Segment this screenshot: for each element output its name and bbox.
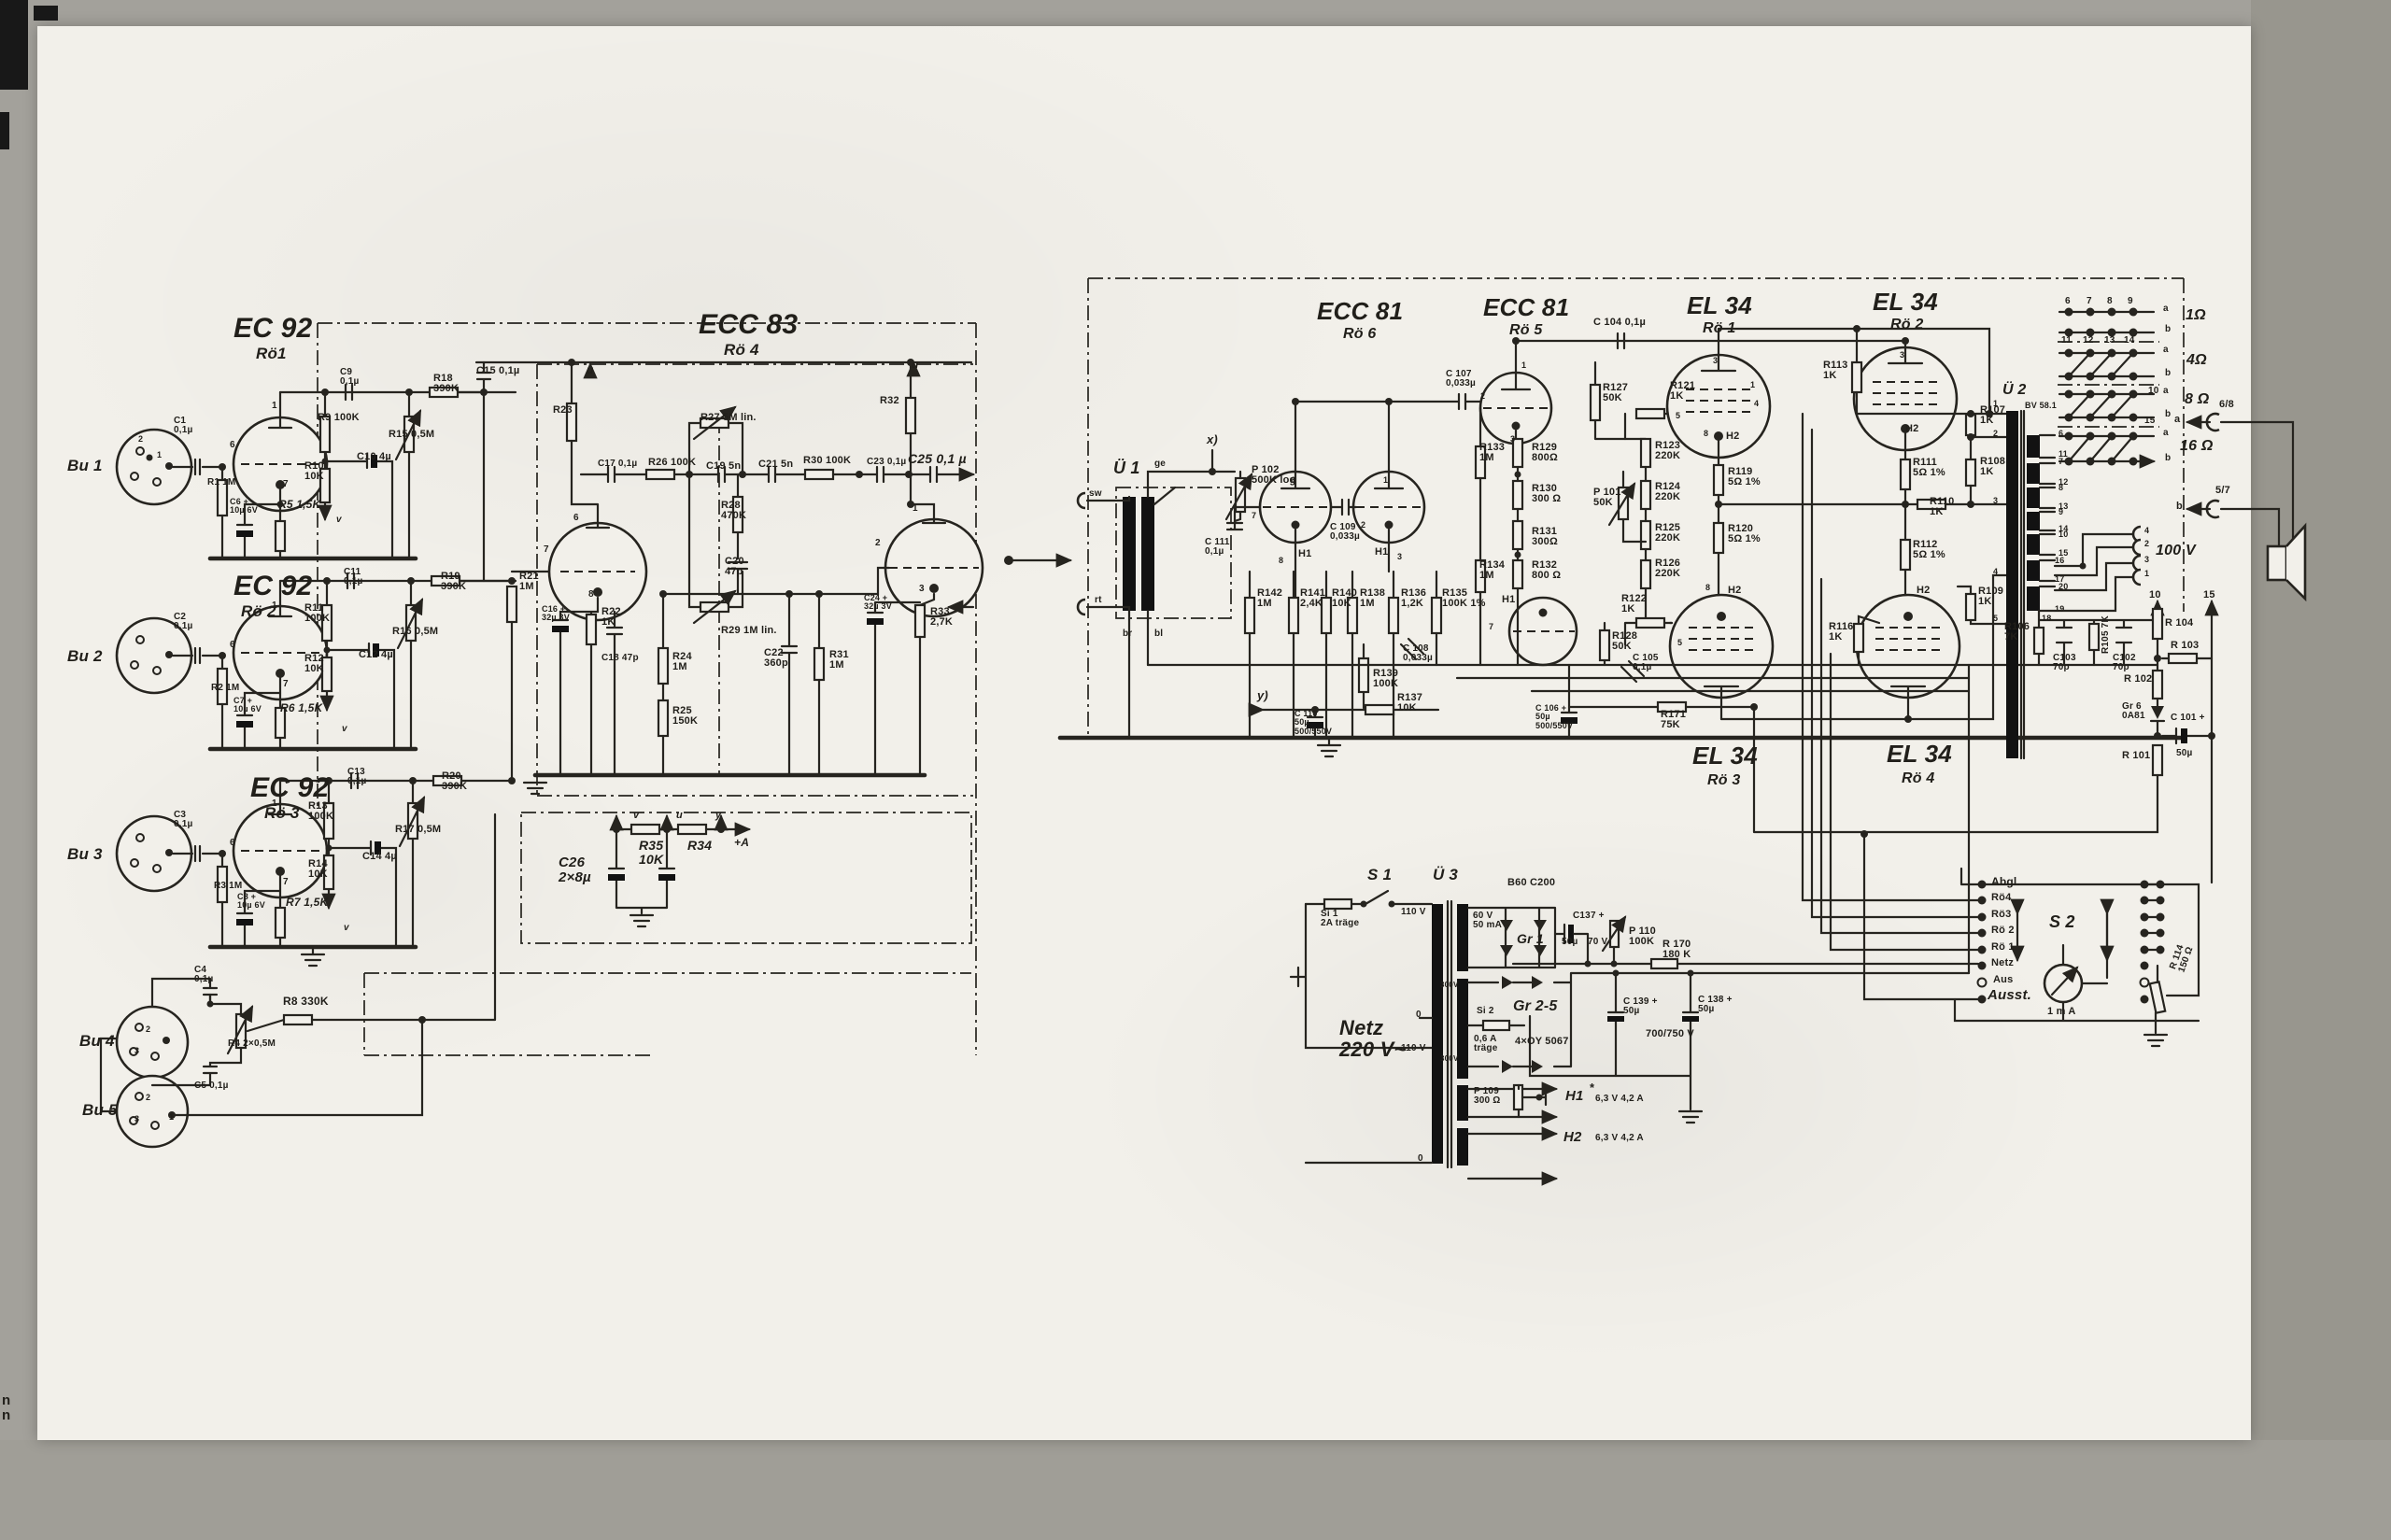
schematic-label: n n (2, 1393, 10, 1422)
scan-gray-margin-bottom (0, 1440, 2391, 1540)
schematic-paper-sheet (37, 26, 2251, 1440)
scan-gray-margin-right (2251, 0, 2391, 1540)
scan-corner-mark (0, 112, 9, 149)
scan-corner-mark (34, 6, 58, 21)
scanned-schematic-page: { "page":{"background":"#a3a19b","paper"… (0, 0, 2391, 1540)
scan-corner-mark (0, 0, 28, 90)
